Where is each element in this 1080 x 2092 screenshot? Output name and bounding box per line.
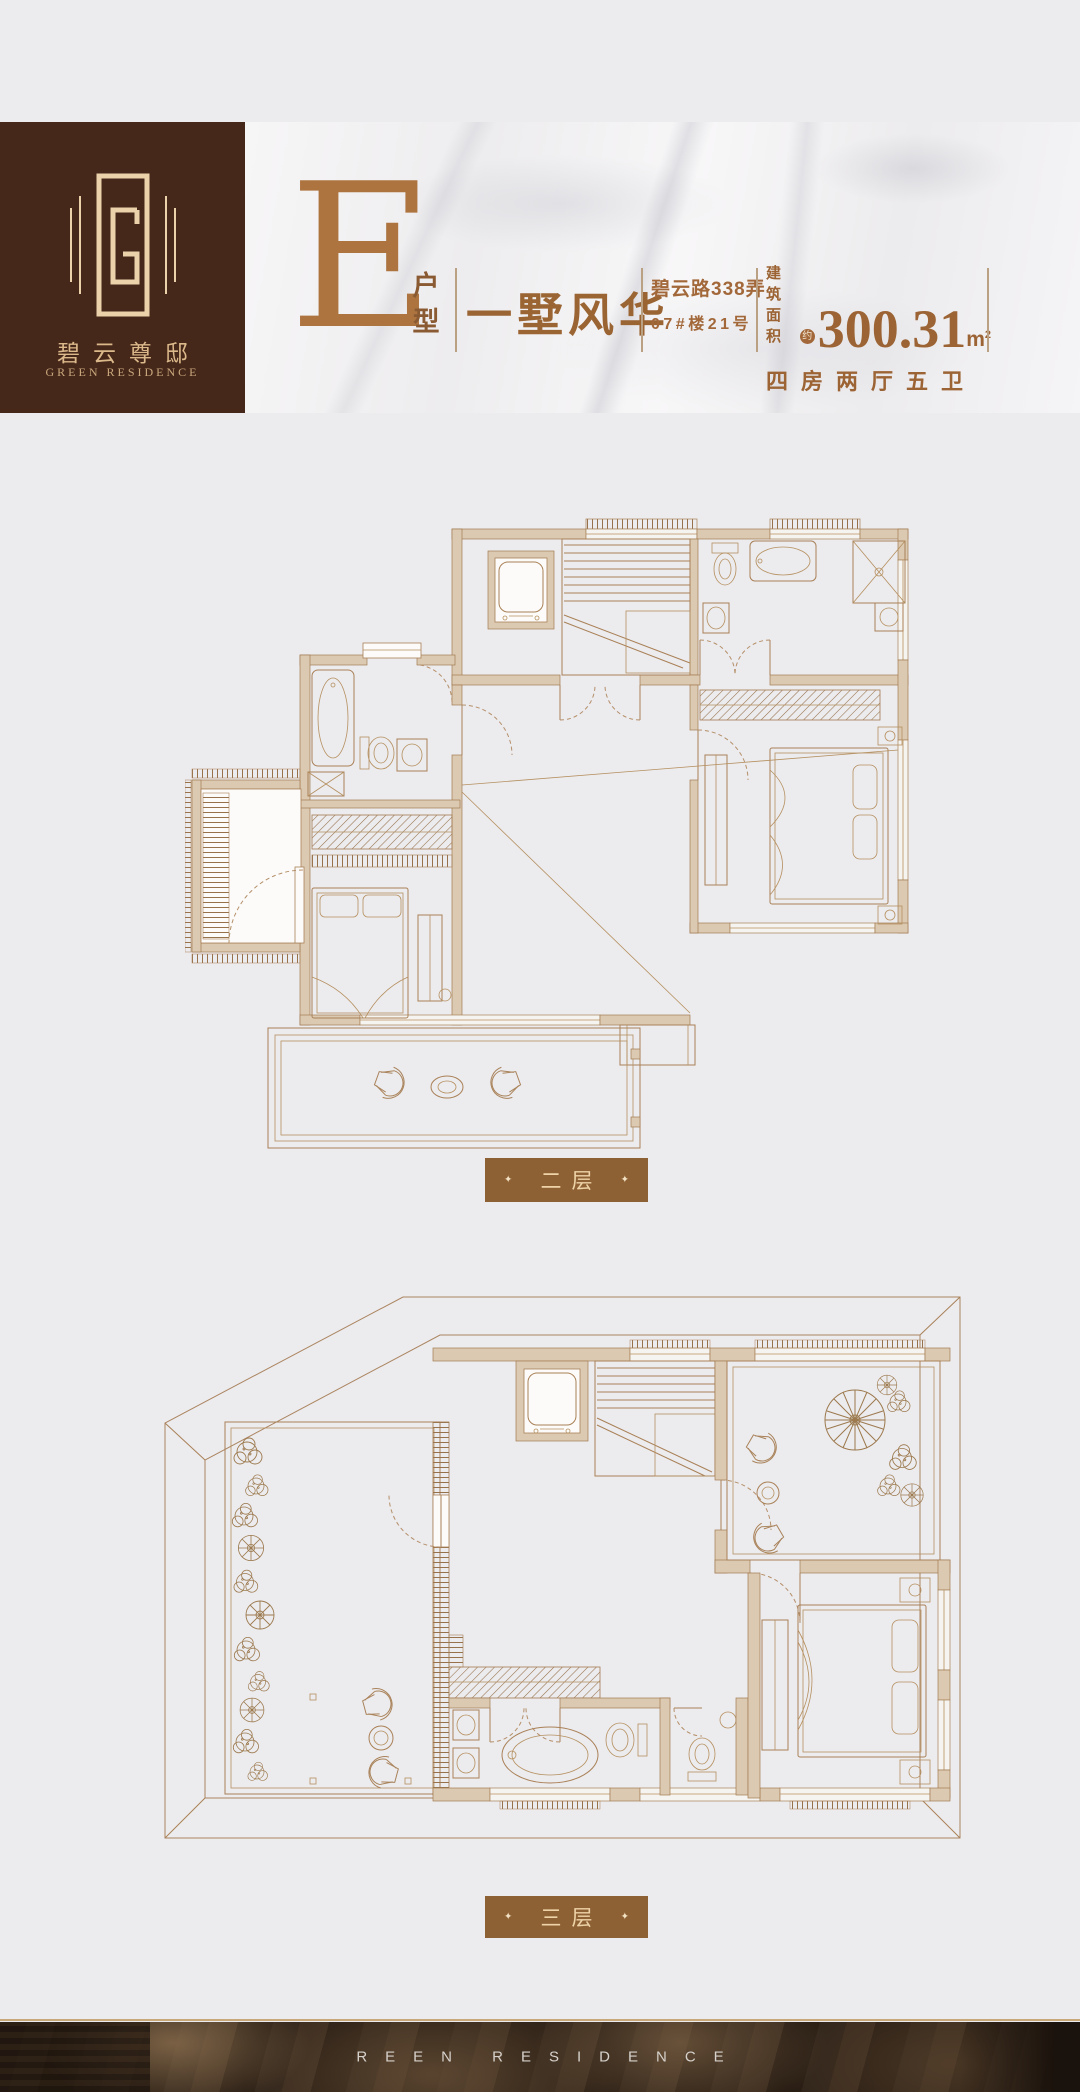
floor-plan-3f <box>150 1290 965 1848</box>
banner-divider <box>455 268 457 352</box>
floor-label-3f-text: 三层 <box>531 1902 603 1932</box>
banner-divider <box>987 268 989 352</box>
diamond-icon: ✦ <box>504 1175 512 1186</box>
brand-monogram-icon <box>63 170 183 320</box>
header-banner: E 户 型 一墅风华 碧云路338弄 07#楼21号 建筑面积 约 300.31… <box>245 122 1080 413</box>
address-line1: 碧云路338弄 <box>651 274 766 301</box>
brand-name-en: GREEN RESIDENCE <box>0 365 245 380</box>
footer-brand-text: REEN RESIDENCE <box>0 2049 1080 2066</box>
floor-label-3f: ✦ 三层 ✦ <box>485 1896 648 1938</box>
diamond-icon: ✦ <box>504 1912 512 1923</box>
banner-divider <box>641 268 643 352</box>
area-block: 建筑面积 约 300.31 m2 四房两厅五卫 <box>766 262 991 396</box>
brand-logo-box: 碧云尊邸 GREEN RESIDENCE <box>0 122 245 413</box>
poster-page: 碧云尊邸 GREEN RESIDENCE E 户 型 一墅风华 碧云路338弄 … <box>0 0 1080 2092</box>
floor-plan-2f <box>185 515 910 1160</box>
brand-name-cn: 碧云尊邸 <box>0 334 245 368</box>
address-block: 碧云路338弄 07#楼21号 <box>651 274 766 334</box>
area-value: 300.31 <box>818 302 967 356</box>
approx-badge: 约 <box>800 329 815 344</box>
unit-suffix-bottom: 型 <box>409 304 443 340</box>
address-line2: 07#楼21号 <box>651 310 766 334</box>
banner-divider <box>756 268 758 352</box>
area-row: 建筑面积 约 300.31 m2 <box>766 262 991 356</box>
area-label: 建筑面积 <box>766 262 797 356</box>
floor-label-2f-text: 二层 <box>531 1165 603 1195</box>
unit-suffix-top: 户 <box>409 268 443 304</box>
diamond-icon: ✦ <box>621 1175 629 1186</box>
floor-label-2f: ✦ 二层 ✦ <box>485 1158 648 1202</box>
unit-suffix: 户 型 <box>409 268 443 340</box>
footer-photo-strip: REEN RESIDENCE <box>0 2022 1080 2092</box>
diamond-icon: ✦ <box>621 1912 629 1923</box>
layout-text: 四房两厅五卫 <box>766 364 991 396</box>
banner-tagline: 一墅风华 <box>466 279 646 345</box>
footer-divider-line <box>0 2019 1080 2021</box>
